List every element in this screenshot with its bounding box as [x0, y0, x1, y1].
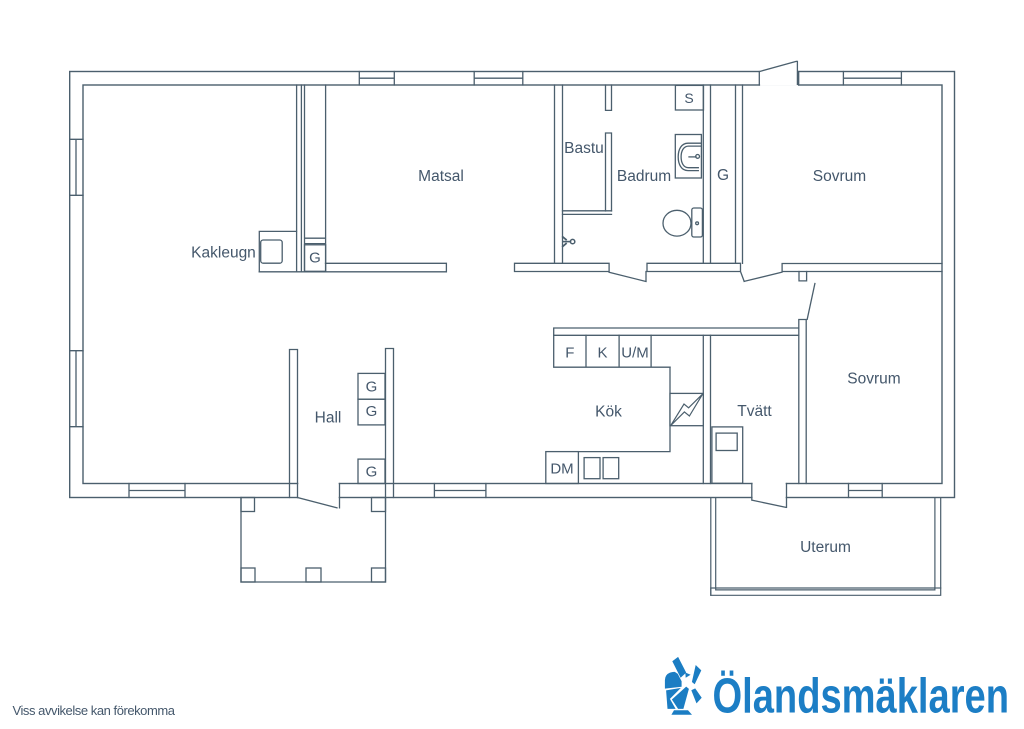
svg-text:G: G [366, 464, 378, 481]
svg-text:Kakleugn: Kakleugn [191, 245, 256, 262]
svg-text:S: S [684, 90, 693, 106]
svg-text:Hall: Hall [315, 410, 342, 427]
svg-text:Sovrum: Sovrum [847, 371, 900, 388]
svg-text:U/M: U/M [621, 345, 649, 362]
svg-text:Badrum: Badrum [617, 168, 671, 185]
svg-text:Ölandsmäklaren: Ölandsmäklaren [713, 670, 1010, 724]
svg-text:Tvätt: Tvätt [737, 403, 772, 420]
svg-text:Kök: Kök [595, 404, 622, 421]
svg-text:DM: DM [550, 461, 573, 478]
svg-text:K: K [597, 345, 607, 362]
svg-text:Viss avvikelse kan förekomma: Viss avvikelse kan förekomma [13, 703, 176, 718]
svg-text:Sovrum: Sovrum [813, 168, 866, 185]
svg-text:F: F [565, 345, 574, 362]
svg-text:Bastu: Bastu [564, 140, 604, 157]
svg-text:G: G [366, 379, 378, 396]
svg-text:G: G [366, 403, 378, 420]
svg-text:Uterum: Uterum [800, 539, 851, 556]
svg-text:G: G [309, 250, 321, 267]
svg-text:Matsal: Matsal [418, 168, 464, 185]
svg-text:G: G [717, 167, 729, 184]
